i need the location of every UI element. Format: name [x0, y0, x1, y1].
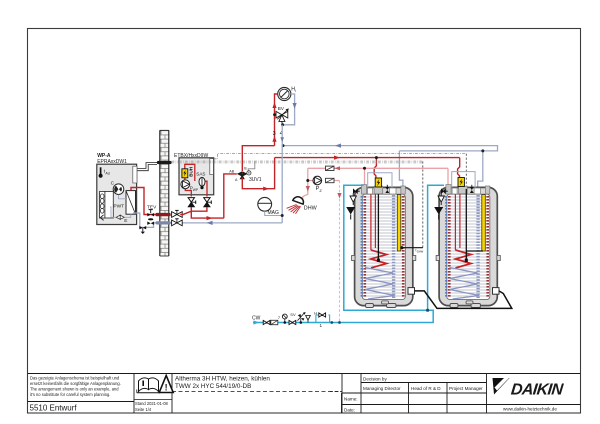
svg-text:CW: CW: [252, 315, 261, 321]
svg-text:Name:: Name:: [344, 397, 358, 402]
svg-text:www.daikin-heiztechnik.de: www.daikin-heiztechnik.de: [503, 407, 557, 412]
svg-text:DHW: DHW: [417, 250, 424, 254]
svg-text:Date:: Date:: [344, 408, 355, 413]
svg-text:3UV1: 3UV1: [249, 177, 262, 183]
svg-text:H: H: [314, 311, 317, 316]
svg-text:it's no substitute for careful: it's no substitute for careful system pl…: [30, 392, 110, 397]
svg-text:ersetzt keinesfalls die sorgfä: ersetzt keinesfalls die sorgfältige Anla…: [30, 381, 121, 386]
svg-text:DHW: DHW: [304, 205, 318, 211]
svg-text:!: !: [165, 383, 168, 393]
svg-text:EPRAxxDW1: EPRAxxDW1: [97, 159, 127, 165]
svg-text:BUH: BUH: [189, 167, 194, 177]
svg-text:DAIKIN: DAIKIN: [510, 381, 564, 399]
svg-text:AB: AB: [229, 169, 234, 173]
svg-text:PWT: PWT: [113, 203, 124, 209]
svg-text:1: 1: [320, 323, 323, 328]
svg-text:C: C: [111, 180, 115, 186]
svg-text:SV: SV: [290, 312, 296, 317]
svg-text:TWW 2x HYC 544/19/0-DB: TWW 2x HYC 544/19/0-DB: [175, 383, 251, 390]
svg-text:Head of R & D: Head of R & D: [411, 386, 441, 391]
svg-text:Project Manager: Project Manager: [449, 386, 483, 391]
svg-text:BV: BV: [278, 106, 285, 111]
svg-text:Seite 1/4: Seite 1/4: [135, 407, 152, 412]
svg-text:E: E: [124, 218, 127, 224]
svg-text:3: 3: [273, 131, 276, 137]
svg-text:Altherma 3H HTW, heizen, kühle: Altherma 3H HTW, heizen, kühlen: [175, 376, 270, 383]
svg-text:WP: WP: [193, 188, 199, 192]
svg-text:AU: AU: [105, 171, 110, 175]
svg-text:WP-A: WP-A: [97, 153, 111, 159]
svg-text:ETBX/HxxD9W: ETBX/HxxD9W: [174, 153, 208, 159]
svg-text:The arrangement shown is only: The arrangement shown is only an example…: [30, 387, 119, 392]
svg-text:i: i: [295, 89, 296, 93]
svg-text:Decision by: Decision by: [363, 377, 387, 382]
svg-text:Das gezeigte Anlagenschema ist: Das gezeigte Anlagenschema ist beispielh…: [30, 376, 120, 381]
svg-text:5510 Entwurf: 5510 Entwurf: [30, 404, 78, 413]
svg-text:Managing Director: Managing Director: [363, 386, 401, 391]
svg-text:SAS: SAS: [196, 172, 205, 177]
svg-text:Stand 2021-01-08: Stand 2021-01-08: [135, 401, 168, 406]
